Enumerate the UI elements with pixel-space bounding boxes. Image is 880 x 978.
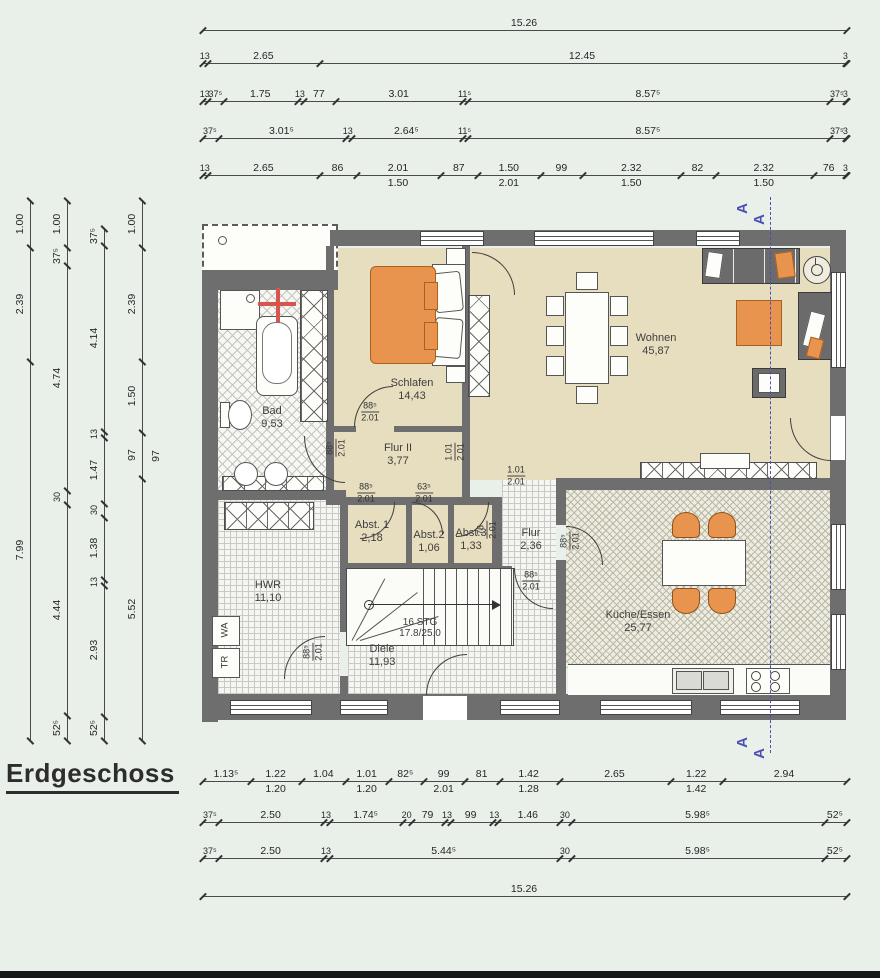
dim-tick [842,135,849,142]
dim-value: 52⁵ [88,720,100,736]
wall-abst2-3 [448,497,454,565]
dim-tick [459,98,466,105]
dim-tick [64,737,71,744]
dim-value: 5.98⁵ [685,810,710,821]
dim-value: 86 [332,163,344,174]
floor-plan-sheet: WA TR 16 STG 17.8/25.0 Erdgeschoss 15.26… [0,0,880,978]
dim-tick [385,778,392,785]
dim-value: 1.75 [250,89,270,100]
dim-value: 13 [321,846,331,857]
dim-tick [298,778,305,785]
dim-tick [101,713,108,720]
dim-tick [326,819,333,826]
dim-value: 82 [692,163,704,174]
dim-tick [139,358,146,365]
dim-line [142,200,143,740]
dim-tick [464,98,471,105]
dim-value: 2.39 [14,294,26,314]
dim-tick [342,135,349,142]
dim-value: 1.38 [88,537,100,557]
dim-tick [199,819,206,826]
window-schlafen-top [420,231,484,246]
dim-value: 2.32 [753,163,773,174]
wall-kueche-left-b [556,560,566,696]
dim-line [202,858,846,859]
dim-tick [316,60,323,67]
dim-line [202,30,846,31]
nightstand-1 [446,248,466,265]
dim-tick [215,855,222,862]
wall-schlafen-flur2-b [394,426,462,432]
dim-tick [199,855,206,862]
stair-label-line1: 16 STG [403,617,437,628]
coffee-table [736,300,782,346]
section-line-a [770,197,771,753]
dryer-label: TR [220,656,231,669]
dining-chair-l2 [546,326,564,346]
sink-right [264,462,288,486]
dim-tick [215,135,222,142]
stair-label: 16 STG 17.8/25.0 [399,617,441,639]
dim-value: 2.65 [604,769,624,780]
dim-value: 4.44 [51,600,63,620]
dim-tick [842,98,849,105]
dim-value: 15.26 [511,18,537,29]
dim-value: 5.52 [126,599,138,619]
dim-tick [843,60,850,67]
dim-tick [27,737,34,744]
dim-line [67,200,68,740]
stair-label-line2: 17.8/25.0 [399,628,441,639]
dim-value: 13 [200,89,210,100]
dim-tick [556,855,563,862]
dim-tick [215,819,222,826]
dim-tick [205,98,212,105]
dim-line [202,138,846,139]
dim-tick [101,737,108,744]
dim-tick [64,197,71,204]
dim-line [104,228,105,740]
dim-value: 12.45 [569,51,595,62]
tv-board [700,453,750,469]
dim-value: 30 [52,492,62,502]
dim-value: 1.47 [88,460,100,480]
dimension-chain-v: 1.002.397.99 [14,200,44,740]
dim-sub-value: 2.01 [433,784,453,795]
dim-line [202,63,846,64]
dim-line [202,781,846,782]
dim-tick [101,434,108,441]
dim-tick [843,98,850,105]
dim-tick [294,98,301,105]
dim-tick [199,60,206,67]
dim-tick [199,172,206,179]
dining-table [565,292,609,384]
dining-chair-r3 [610,356,628,376]
dim-tick [101,242,108,249]
window-hwr-bottom [230,700,312,715]
dim-tick [101,576,108,583]
dim-tick [342,778,349,785]
dim-value: 13 [200,163,210,174]
dim-tick [64,487,71,494]
dim-tick [842,60,849,67]
wall-flur2-wohnen [462,440,470,497]
dining-chair-l1 [546,296,564,316]
flue-symbol-inner [811,264,823,276]
dim-tick [843,135,850,142]
dimension-chain-h: 15.26 [202,884,846,912]
dim-tick [447,819,454,826]
dim-tick [199,135,206,142]
dim-tick [538,172,545,179]
bed-cushion-1 [424,282,438,310]
dim-value: 30 [89,505,99,515]
dim-tick [496,778,503,785]
dim-tick [139,197,146,204]
dim-tick [464,135,471,142]
dim-extra-value: 97 [150,450,162,462]
dim-tick [400,819,407,826]
dim-tick [348,135,355,142]
dim-value: 13 [200,51,210,62]
dimension-chain-v: 37⁵4.14131.47301.38132.9352⁵ [88,228,118,740]
dim-value: 3 [843,163,848,174]
stair-arrow-head [492,600,501,610]
wall-wohnen-kueche [556,478,830,490]
dim-value: 2.01 [388,163,408,174]
window-diele-bottom2 [500,700,560,715]
dim-tick [326,855,333,862]
dim-tick [101,500,108,507]
kitchen-table [662,540,746,586]
dim-tick [199,893,206,900]
dim-value: 1.00 [51,214,63,234]
dim-tick [842,172,849,179]
door-gap-entrance [423,696,467,720]
dim-tick [821,855,828,862]
dim-tick [320,855,327,862]
dim-sub-value: 1.20 [356,784,376,795]
dim-value: 1.00 [14,214,26,234]
dim-value: 77 [313,89,325,100]
dim-value: 1.01 [356,769,376,780]
dimension-chain-h: 132.65862.01871.50992.32822.327631.502.0… [202,163,846,191]
dim-value: 79 [422,810,434,821]
dim-tick [64,712,71,719]
dim-value: 2.32 [621,163,641,174]
dim-value: 2.39 [126,294,138,314]
washer-label: WA [220,623,231,638]
dim-tick [247,778,254,785]
kitchen-chair-4 [708,588,736,614]
dim-tick [27,197,34,204]
dim-value: 37⁵ [209,89,223,100]
nightstand-2 [446,366,466,383]
dim-tick [826,135,833,142]
dim-tick [826,98,833,105]
kitchen-chair-2 [708,512,736,538]
dim-value: 82⁵ [397,769,413,780]
dim-tick [712,172,719,179]
dim-tick [316,172,323,179]
dim-value: 5.44⁵ [431,846,456,857]
dim-tick [205,60,212,67]
pipe-horizontal [258,302,296,306]
dim-value: 8.57⁵ [636,89,661,100]
section-letter-a: A [734,203,751,214]
dim-value: 2.93 [88,640,100,660]
dim-value: 13 [489,810,499,821]
window-diele-bottom1 [340,700,388,715]
dining-chair-r1 [610,296,628,316]
dim-value: 52⁵ [827,810,843,821]
dim-tick [441,819,448,826]
dim-tick [408,819,415,826]
pipe-vertical [276,288,280,324]
dim-value: 37⁵ [203,846,217,857]
dim-value: 11⁵ [458,89,471,100]
window-kueche-right2 [831,614,846,670]
dim-tick [332,98,339,105]
dim-tick [101,225,108,232]
bathtub-inner [262,322,292,384]
wall-porch-bottom [202,270,338,290]
stove-burner-4 [770,682,780,692]
window-kueche-right1 [831,524,846,590]
dim-tick [821,819,828,826]
page-title: Erdgeschoss [6,758,179,794]
dim-tick [64,501,71,508]
dim-tick [474,172,481,179]
dim-tick [494,819,501,826]
dimension-chain-h: 1337⁵1.7513773.0111⁵8.57⁵37⁵3 [202,89,846,117]
dim-tick [556,778,563,785]
stair-start-circle [364,600,374,610]
dim-value: 15.26 [511,884,537,895]
wall-bad-bottom [202,490,346,500]
side-chair-seat [758,373,780,393]
dim-value: 87 [453,163,465,174]
dim-value: 8.57⁵ [636,126,661,137]
dim-line [30,200,31,740]
dim-value: 2.94 [774,769,794,780]
dim-sub-value: 2.01 [499,178,519,189]
section-letter-a: A [734,737,751,748]
dim-value: 13 [321,810,331,821]
dim-sub-value: 1.50 [388,178,408,189]
dim-value: 1.42 [518,769,538,780]
dim-tick [719,778,726,785]
wall-schlafen-flur2 [326,426,356,432]
door-gap-terrace [831,416,845,460]
dim-value: 1.22 [686,769,706,780]
dim-value: 97 [126,449,138,461]
dim-value: 13 [89,429,99,439]
dim-tick [27,358,34,365]
dining-chair-r2 [610,326,628,346]
dim-sub-value: 1.50 [621,178,641,189]
dim-value: 99 [465,810,477,821]
dim-tick [101,514,108,521]
dim-tick [139,429,146,436]
dining-chair-l3 [546,356,564,376]
window-kueche-bottom1 [600,700,692,715]
dim-value: 13 [442,810,452,821]
kitchen-sink-basin1 [676,671,702,690]
dimension-chain-v: 1.0037⁵4.74304.4452⁵ [51,200,81,740]
dim-sub-value: 1.28 [518,784,538,795]
dim-value: 2.50 [260,810,280,821]
dim-value: 37⁵ [51,248,63,264]
dim-value: 1.04 [313,769,333,780]
kitchen-chair-3 [672,588,700,614]
porch-outline [202,224,338,276]
dim-value: 3.01⁵ [269,126,294,137]
dim-value: 1.22 [265,769,285,780]
dim-tick [139,475,146,482]
dim-value: 81 [476,769,488,780]
dim-tick [843,893,850,900]
dim-tick [843,855,850,862]
dim-value: 13 [89,577,99,587]
dim-line [202,101,846,102]
dim-tick [199,778,206,785]
dimension-chain-h: 15.26 [202,18,846,46]
dim-tick [437,172,444,179]
floor-flur2 [334,426,462,497]
dim-tick [199,27,206,34]
dim-line [202,822,846,823]
dim-value: 99 [438,769,450,780]
dim-tick [568,819,575,826]
dim-tick [568,855,575,862]
wardrobe-bad [300,290,328,422]
section-letter-a: A [751,748,768,759]
dining-chair-top [576,272,598,290]
dim-line [202,896,846,897]
dim-value: 3 [843,51,848,62]
dim-tick [205,172,212,179]
window-kueche-bottom2 [720,700,800,715]
dim-value: 3 [843,126,848,137]
dim-value: 5.98⁵ [685,846,710,857]
toilet-bowl [228,400,252,430]
dim-value: 30 [560,810,570,821]
dim-tick [677,172,684,179]
dim-tick [843,778,850,785]
dimension-chain-h: 37⁵2.50135.44⁵305.98⁵52⁵ [202,846,846,874]
dim-value: 1.13⁵ [214,769,239,780]
dim-value: 1.50 [126,386,138,406]
dim-value: 20 [402,810,412,821]
dim-tick [667,778,674,785]
dim-value: 7.99 [14,540,26,560]
dim-value: 11⁵ [458,126,471,137]
dim-tick [420,778,427,785]
dim-tick [64,244,71,251]
dim-value: 2.64⁵ [394,126,419,137]
dim-tick [27,244,34,251]
dim-tick [556,819,563,826]
dim-value: 3.01 [388,89,408,100]
dim-tick [220,98,227,105]
window-wohnen-top2 [696,231,740,246]
wall-abst3-flur [492,497,502,565]
dim-tick [459,135,466,142]
dim-value: 1.46 [518,810,538,821]
section-letter-a: A [751,214,768,225]
dim-value: 52⁵ [51,720,63,736]
dim-tick [139,244,146,251]
dim-value: 13 [343,126,353,137]
dim-value: 52⁵ [827,846,843,857]
dim-value: 37⁵ [830,89,844,100]
dimension-chain-h: 1.13⁵1.221.041.0182⁵99811.422.651.222.94… [202,769,846,797]
dim-tick [199,98,206,105]
dim-value: 2.65 [253,163,273,174]
dim-tick [101,582,108,589]
dim-value: 1.74⁵ [353,810,378,821]
dim-value: 4.74 [51,367,63,387]
stove-burner-2 [770,671,780,681]
dim-sub-value: 1.42 [686,784,706,795]
dim-value: 76 [823,163,835,174]
shower-drain [246,294,255,303]
dim-tick [139,737,146,744]
dim-value: 2.65 [253,51,273,62]
flue-symbol-stem [815,258,816,265]
dim-value: 99 [556,163,568,174]
dimension-chain-v: 1.002.391.50975.52 [126,200,156,740]
dim-tick [462,778,469,785]
stove-burner-3 [751,682,761,692]
dim-value: 1.50 [499,163,519,174]
dim-tick [843,27,850,34]
dim-tick [843,819,850,826]
stove-burner-1 [751,671,761,681]
dim-value: 37⁵ [88,228,100,244]
porch-light-icon [218,236,227,245]
dim-tick [64,262,71,269]
dim-value: 2.50 [260,846,280,857]
dimension-chain-h: 37⁵3.01⁵132.64⁵11⁵8.57⁵37⁵3 [202,126,846,154]
dim-sub-value: 1.20 [265,784,285,795]
sink-left [234,462,258,486]
dim-value: 37⁵ [203,126,217,137]
dim-value: 30 [560,846,570,857]
dimension-chain-h: 132.6512.453 [202,51,846,79]
dim-tick [300,98,307,105]
wardrobe-hwr [224,502,314,530]
dining-chair-bottom [576,386,598,404]
kitchen-sink-basin2 [703,671,729,690]
dim-tick [353,172,360,179]
bed-cushion-2 [424,322,438,350]
dim-tick [320,819,327,826]
dim-value: 3 [843,89,848,100]
window-wohnen-right [831,272,846,368]
dim-tick [810,172,817,179]
dim-tick [489,819,496,826]
dim-value: 4.14 [88,328,100,348]
sofa-blanket [774,251,795,279]
scan-edge [0,971,880,978]
wall-hwr-diele-b [340,676,348,696]
wardrobe-schlafen-right [468,295,490,397]
dim-value: 13 [295,89,305,100]
dim-tick [101,428,108,435]
